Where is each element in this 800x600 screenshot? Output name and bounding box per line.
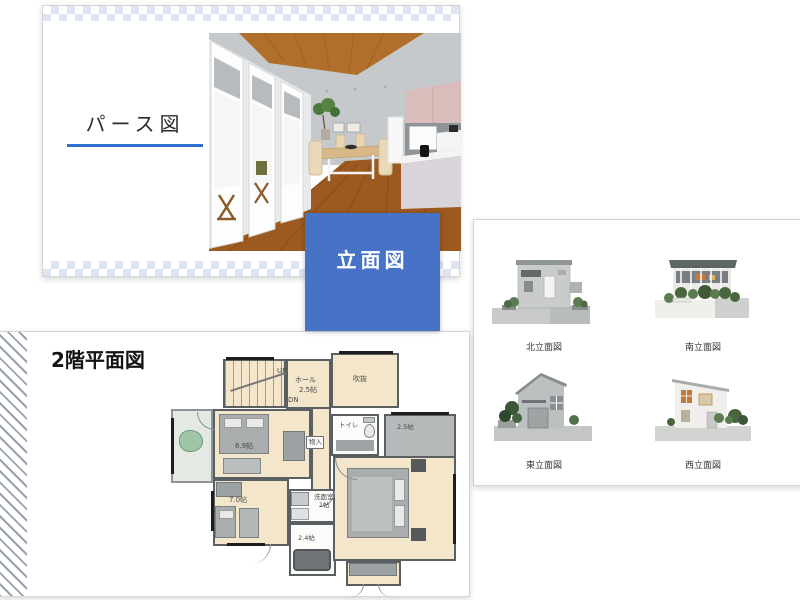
east-elevation-figure: 東立面図 <box>484 366 604 471</box>
bath-size-label: 2.4帖 <box>298 535 315 543</box>
balcony-plant-icon <box>179 430 203 452</box>
north-elevation-illustration <box>484 248 604 333</box>
sink-icon <box>291 508 309 520</box>
south-elevation-illustration <box>643 248 763 333</box>
diagonal-stripe-decor <box>0 332 27 596</box>
nightstand-icon <box>411 459 426 472</box>
perspective-title-block: パース図 <box>67 108 203 147</box>
bedroom-size-label: 6.9帖 <box>235 442 253 450</box>
window-marker <box>171 418 174 474</box>
dresser-icon <box>349 563 397 576</box>
stairs-up-label: UP <box>277 367 286 375</box>
elevations-card[interactable]: 北立面図 南立面図 <box>473 219 800 486</box>
north-elevation-label: 北立面図 <box>484 340 604 353</box>
kids-desk-icon <box>216 482 242 497</box>
window-marker <box>391 412 449 415</box>
kids-size-label: 7.0帖 <box>229 496 247 504</box>
west-elevation-label: 西立面図 <box>643 458 763 471</box>
north-elevation-figure: 北立面図 <box>484 248 604 353</box>
washroom-size-label: 1帖 <box>319 502 330 510</box>
elevation-section-label: 立面図 <box>337 248 409 272</box>
storage-label: 物入 <box>309 439 322 447</box>
nightstand-icon <box>411 528 426 541</box>
west-elevation-figure: 西立面図 <box>643 366 763 471</box>
door-arc <box>378 584 394 598</box>
floorplan-card[interactable]: 2階平面図 <box>0 331 470 597</box>
desk-icon <box>223 458 261 474</box>
hall-size-label: 2.5帖 <box>299 386 317 394</box>
window-marker <box>339 351 393 354</box>
window-marker <box>211 491 214 531</box>
south-elevation-label: 南立面図 <box>643 340 763 353</box>
toilet-bowl-icon <box>364 424 375 438</box>
closet-size-label: 2.5帖 <box>397 424 414 432</box>
void-label: 吹抜 <box>353 375 367 383</box>
room-closet <box>384 414 456 459</box>
hall-label: ホール <box>295 376 316 384</box>
toilet-label: トイレ <box>339 422 359 430</box>
checker-border-top <box>43 6 459 21</box>
east-elevation-illustration <box>484 366 604 451</box>
door-arc <box>251 544 271 564</box>
floorplan-title: 2階平面図 <box>51 344 145 373</box>
window-marker <box>453 474 456 544</box>
south-elevation-figure: 南立面図 <box>643 248 763 353</box>
kids-bed-icon <box>239 508 259 538</box>
stairs-down-label: DN <box>288 396 299 404</box>
toilet-counter <box>336 440 374 451</box>
kids-bed-icon <box>215 506 236 538</box>
title-underline <box>67 144 203 147</box>
perspective-title: パース図 <box>67 108 203 137</box>
washer-icon <box>291 492 309 506</box>
room-corridor <box>311 407 331 491</box>
architectural-presentation-collage: パース図 <box>0 0 800 600</box>
storage-box: 物入 <box>306 436 324 449</box>
window-marker <box>226 357 274 360</box>
bathtub-icon <box>293 549 331 571</box>
west-elevation-illustration <box>643 366 763 451</box>
east-elevation-label: 東立面図 <box>484 458 604 471</box>
wardrobe-icon <box>283 431 305 461</box>
elevation-section-label-box[interactable]: 立面図 <box>305 213 440 331</box>
floorplan-drawing: 物入 UP ホール 2.5帖 DN 吹抜 6.9帖 トイレ 2.5帖 7.0帖 … <box>171 346 461 596</box>
toilet-tank-icon <box>363 417 375 423</box>
door-arc <box>348 584 364 598</box>
